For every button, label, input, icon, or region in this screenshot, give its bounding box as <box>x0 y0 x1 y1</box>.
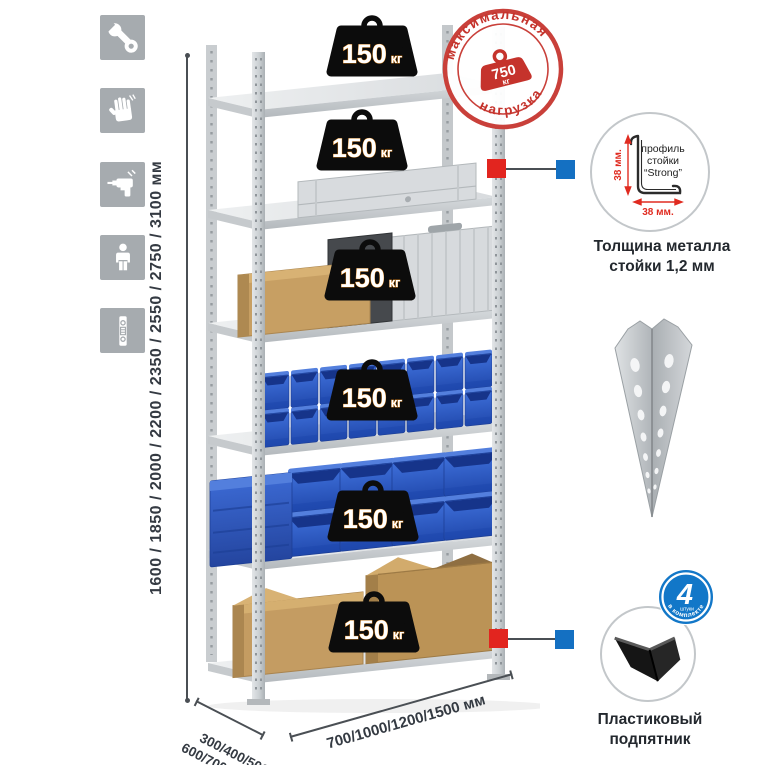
callout-line-top <box>505 168 557 170</box>
back-left-post <box>206 45 217 662</box>
person-icon <box>100 235 145 280</box>
profile-detail-circle: 38 мм. 38 мм. профиль стойки “Strong” <box>588 110 712 234</box>
foot-caption-line2: подпятник <box>609 731 690 748</box>
svg-text:38 мм.: 38 мм. <box>613 149 624 181</box>
front-left-post <box>252 52 265 702</box>
profile-caption-line1: Толщина металла <box>594 238 731 255</box>
wrench-icon <box>100 15 145 60</box>
callout-marker-red-top <box>487 159 506 178</box>
profile-caption-line2: стойки 1,2 мм <box>609 258 714 275</box>
drill-icon <box>100 162 145 207</box>
profile-strip-icon <box>100 308 145 353</box>
quantity-badge: 4 штуки в комплекте <box>657 568 715 626</box>
svg-text:стойки: стойки <box>647 155 679 167</box>
svg-text:38 мм.: 38 мм. <box>642 207 674 218</box>
foot-caption: Пластиковый подпятник <box>570 710 730 750</box>
profile-caption: Толщина металла стойки 1,2 мм <box>582 237 742 277</box>
svg-text:“Strong”: “Strong” <box>644 167 682 179</box>
height-dimension-line <box>186 56 188 700</box>
callout-marker-blue-top <box>556 160 575 179</box>
callout-marker-blue-bottom <box>555 630 574 649</box>
callout-line-bottom <box>507 638 556 640</box>
height-dimension-label: 1600 / 1850 / 2000 / 2200 / 2350 / 2550 … <box>146 60 168 696</box>
depth-dimension-label: 300/400/500 600/700/800 мм <box>164 718 295 765</box>
product-infographic: 1600 / 1850 / 2000 / 2200 / 2350 / 2550 … <box>0 0 765 765</box>
callout-marker-red-bottom <box>489 629 508 648</box>
svg-text:профиль: профиль <box>641 143 685 155</box>
gloves-icon <box>100 88 145 133</box>
corner-post-image <box>595 303 710 533</box>
foot-caption-line1: Пластиковый <box>598 711 703 728</box>
max-load-stamp: максимальная нагрузка 750 кг <box>437 3 569 135</box>
